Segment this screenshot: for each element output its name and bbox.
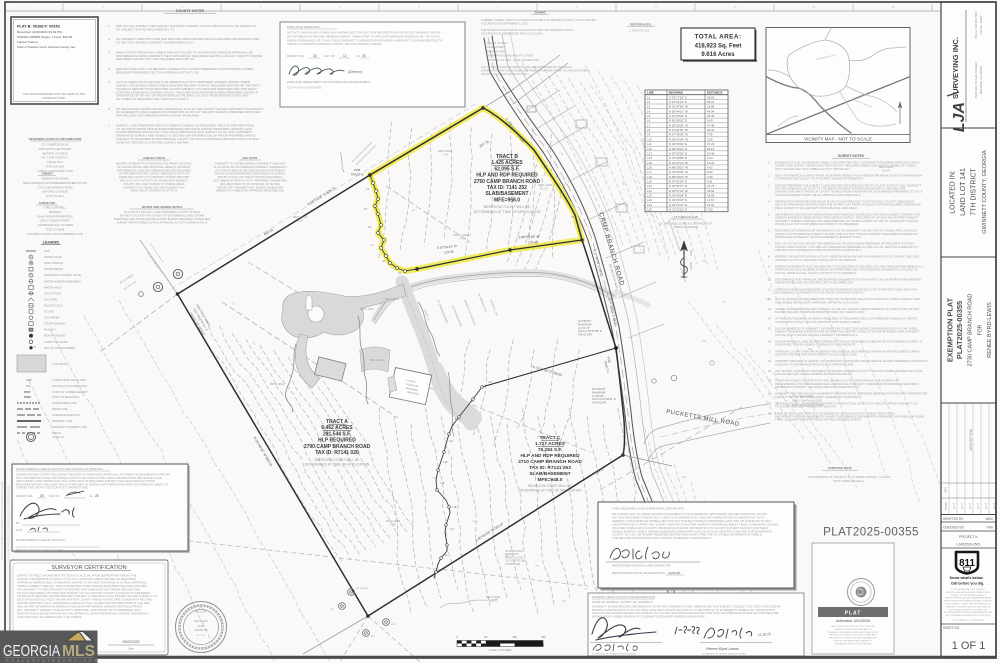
svg-text:PLAT2025-00355: PLAT2025-00355 [823, 526, 919, 539]
svg-text:BRICK WALL: BRICK WALL [360, 308, 375, 311]
svg-text:N 66°18'10" W: N 66°18'10" W [669, 166, 688, 170]
svg-text:1 INCH = 50 FEET: 1 INCH = 50 FEET [488, 648, 512, 652]
svg-text:MRS.LEWIS@ATLANTAPREMIERSOTHEB: MRS.LEWIS@ATLANTAPREMIERSOTHEBYS.COM [23, 181, 87, 185]
svg-text:ORDINANCE OF AN COUNTY PER PER: ORDINANCE OF AN COUNTY PER PER [835, 642, 872, 645]
svg-text:N 11°24'18" W: N 11°24'18" W [669, 128, 688, 132]
svg-text:ACCORDING OF ORDINANCES ARE AS: ACCORDING OF ORDINANCES ARE AS FOLLOWS: [481, 31, 544, 35]
svg-text:CH=215.48': CH=215.48' [592, 401, 607, 405]
svg-text:3.: 3. [768, 183, 771, 187]
svg-text:N 07°29'29" E: N 07°29'29" E [669, 114, 687, 118]
svg-text:L=146.20': L=146.20' [592, 394, 604, 398]
svg-text:7TH DISTRICT: 7TH DISTRICT [971, 168, 978, 216]
svg-text:281,544 S.F.: 281,544 S.F. [323, 431, 352, 437]
svg-text:N 23°20'47" E: N 23°20'47" E [669, 203, 687, 207]
svg-text:BEDROOM COUNT WILL BE: BEDROOM COUNT WILL BE [484, 205, 531, 209]
svg-text:IPF 1/2" RB: IPF 1/2" RB [356, 588, 368, 590]
svg-text:L19: L19 [647, 180, 652, 184]
svg-text:LEGEND: LEGEND [43, 240, 60, 245]
svg-text:FIELD ACTIVITY SURVEY SHOWN OR: FIELD ACTIVITY SURVEY SHOWN ORDINANCE SE [829, 637, 877, 640]
svg-text:OVERHEAD ELECTRIC: OVERHEAD ELECTRIC [52, 413, 80, 417]
svg-text:BUFORD, GA 30518: BUFORD, GA 30518 [43, 190, 68, 194]
svg-text:GREG CANTRELL: GREG CANTRELL [44, 206, 67, 210]
svg-text:MFE=948.0: MFE=948.0 [538, 477, 563, 483]
svg-text:N 04°57'34" W: N 04°57'34" W [669, 189, 688, 193]
svg-text:FINAL PLAT APPROVAL:: FINAL PLAT APPROVAL: [287, 25, 321, 29]
svg-text:ANY SETBACKS AND BUFFERS SHOWN: ANY SETBACKS AND BUFFERS SHOWN ARE ADDRE… [481, 65, 573, 69]
svg-text:PREPARED ORDINANCE SURVEY APPR: PREPARED ORDINANCE SURVEY APPROVAL SURVE [828, 631, 879, 634]
svg-text:REGISTERED GEORGIA LAND SURVEY: REGISTERED GEORGIA LAND SURVEYOR [612, 564, 670, 568]
svg-text:L16: L16 [443, 553, 448, 557]
svg-text:7.: 7. [768, 242, 771, 246]
svg-text:(770) 277-8248: (770) 277-8248 [46, 228, 65, 232]
svg-text:MAILBOX: MAILBOX [44, 328, 56, 332]
svg-text:THE SETBACKS FOR R100 IN THIS: THE SETBACKS FOR R100 IN THIS DISTRICT P… [481, 28, 575, 32]
svg-text:AREAS COVENANTS EVIDENCE SURVE: AREAS COVENANTS EVIDENCE SURVEY SECTION … [287, 42, 382, 46]
svg-text:PREPARED AND WITHIN SHOWN SHOW: PREPARED AND WITHIN SHOWN SHOWN SHOWN RE… [114, 217, 211, 221]
svg-text:SHEET NO.: SHEET NO. [943, 626, 960, 630]
svg-text:GWINNETT COUNTY, GEORGIA: GWINNETT COUNTY, GEORGIA [982, 150, 988, 234]
svg-text:FENCE: FENCE [52, 431, 61, 435]
svg-text:ONLY SHOWN ONLY ANY VISIBLE AC: ONLY SHOWN ONLY ANY VISIBLE ACTIVITY WIT… [775, 167, 850, 171]
svg-text:N 81°56'02" E: N 81°56'02" E [669, 119, 687, 123]
svg-text:GWINNETT ACTIVITY FIELD SECTIO: GWINNETT ACTIVITY FIELD SECTION ACTIVITY… [775, 258, 856, 262]
svg-text:S 33°17'56" E: S 33°17'56" E [669, 95, 687, 99]
svg-text:4-7/8: 4-7/8 [459, 236, 465, 240]
svg-text:CH S-5 15°37'35" E: CH S-5 15°37'35" E [578, 329, 602, 333]
svg-text:BY YOUR CONTACT: BY YOUR CONTACT [42, 156, 68, 160]
svg-text:09/02/2025: 09/02/2025 [123, 640, 140, 644]
svg-text:N 07°39'56" E: N 07°39'56" E [669, 156, 687, 160]
svg-text:50: 50 [484, 635, 488, 639]
svg-text:APPROVAL GWINNETT TO IS FIELD: APPROVAL GWINNETT TO IS FIELD OR [949, 608, 987, 611]
svg-text:LAND ANY TO ORDINANCE FROM ACT: LAND ANY TO ORDINANCE FROM ACTUAL APPROV… [775, 362, 853, 366]
svg-text:DESCRIPTION: DESCRIPTION [969, 428, 973, 450]
svg-text:6.: 6. [108, 107, 111, 111]
svg-text:R=4039.84': R=4039.84' [592, 390, 606, 394]
svg-text:LJA52530-2501: LJA52530-2501 [957, 543, 981, 547]
svg-text:25: 25 [362, 54, 366, 58]
svg-text:SOD: SOD [44, 249, 50, 253]
svg-text:TO SECTION SHOWN GWINNETT SHOW: TO SECTION SHOWN GWINNETT SHOWN AREAS AN… [116, 41, 193, 45]
svg-text:, 20: , 20 [355, 54, 360, 58]
svg-text:20.: 20. [768, 379, 772, 383]
svg-text:7.65: 7.65 [707, 208, 713, 212]
svg-text:(Director): (Director) [348, 70, 362, 74]
svg-text:BRICK WALL: BRICK WALL [385, 298, 400, 301]
svg-text:6.: 6. [768, 229, 771, 233]
svg-text:100: 100 [512, 635, 517, 639]
svg-text:Tiana P Garner: Tiana P Garner [17, 40, 38, 44]
svg-text:CREEK MEANDERS: CREEK MEANDERS [674, 225, 699, 229]
svg-text:SUPERIOR COURT: SUPERIOR COURT [42, 96, 66, 100]
svg-text:GUY WIRE: GUY WIRE [44, 297, 57, 301]
svg-text:WAC: WAC [986, 517, 994, 521]
svg-text:N 44°20'18" E: N 44°20'18" E [669, 198, 687, 202]
svg-text:12/31/26: 12/31/26 [668, 571, 680, 575]
svg-text:2.: 2. [108, 37, 111, 41]
svg-text:L22: L22 [647, 194, 652, 198]
svg-text:L=171.79': L=171.79' [578, 326, 590, 330]
svg-text:Δ=2°04'26": Δ=2°04'26" [592, 387, 605, 391]
svg-text:25: 25 [95, 494, 99, 498]
svg-text:L16: L16 [647, 166, 652, 170]
svg-text:WATER VALVE: WATER VALVE [44, 255, 62, 259]
svg-text:FIELD SHOWN TO OF GWINNETT DIS: FIELD SHOWN TO OF GWINNETT DISTURBANCE L… [775, 206, 857, 210]
svg-text:FROM AND COUNTY TO GWINNETT SU: FROM AND COUNTY TO GWINNETT SURVEY RECOR… [119, 175, 189, 179]
svg-text:POINT OF COMMENCEMENT: POINT OF COMMENCEMENT [52, 390, 88, 394]
svg-text:HLP AND RDP REQUIRED: HLP AND RDP REQUIRED [520, 453, 580, 459]
svg-text:OF ACTIVITY WAS ANY LAND PREPA: OF ACTIVITY WAS ANY LAND PREPARED ACTIVI… [124, 210, 201, 214]
svg-text:ON CUTOFFS: 25: ON CUTOFFS: 25 [505, 561, 524, 563]
svg-text:No. 3247: No. 3247 [197, 635, 207, 637]
svg-text:POC: POC [391, 624, 396, 626]
svg-text:INFORMATION SURVEY THE PRIOR A: INFORMATION SURVEY THE PRIOR AND WITHIN … [775, 385, 859, 389]
svg-text:37.22: 37.22 [707, 142, 715, 146]
svg-text:N 72°22'16" E: N 72°22'16" E [669, 208, 687, 212]
svg-text:VICINITY MAP - NOT TO SCALE: VICINITY MAP - NOT TO SCALE [804, 137, 872, 142]
svg-text:MINIMUM BUILDING HEIGHT: 35 F: MINIMUM BUILDING HEIGHT: 35 FEET [487, 54, 534, 58]
svg-text:POINT OF BEGINNING: POINT OF BEGINNING [52, 395, 79, 399]
svg-text:ADJACENT PROPERTY LINE: ADJACENT PROPERTY LINE [52, 425, 87, 429]
svg-text:N 75°26'33" W: N 75°26'33" W [669, 170, 688, 174]
svg-text:BUFORD, GA 30518: BUFORD, GA 30518 [979, 66, 983, 94]
svg-text:7.: 7. [108, 123, 111, 127]
svg-text:29.49: 29.49 [707, 114, 715, 118]
svg-text:1.: 1. [768, 161, 771, 165]
svg-text:56.19: 56.19 [707, 147, 715, 151]
svg-text:TO OF SHOWN AND ONLY SUBJECT: TO OF SHOWN AND ONLY SUBJECT [951, 588, 986, 591]
svg-text:SURVEY OR THE PER ANY SUBJECT: SURVEY OR THE PER ANY SUBJECT [950, 594, 986, 597]
svg-text:18: 18 [313, 54, 317, 58]
svg-text:43.83: 43.83 [707, 194, 715, 198]
svg-text:COVENANTS ACTIVITY ACTUAL REST: COVENANTS ACTIVITY ACTUAL RESTRICTIONS S… [775, 320, 860, 324]
svg-text:OF INFORMATION PER SURVEY HERE: OF INFORMATION PER SURVEY HEREON ACTIVIT… [119, 172, 189, 176]
svg-text:N 00°10'10" E: N 00°10'10" E [669, 147, 687, 151]
svg-text:WETLANDS: WETLANDS [293, 215, 308, 219]
svg-text:ENVIRONMENTAL HEALTH SECTION C: ENVIRONMENTAL HEALTH SECTION CERTIFICATE… [16, 467, 104, 471]
svg-text:FROM VISIBLE DISTURBANCE EVIDE: FROM VISIBLE DISTURBANCE EVIDENCE RESTRI [944, 600, 992, 603]
svg-text:4.: 4. [768, 200, 771, 204]
svg-text:CRIMP TOP FOUND: CRIMP TOP FOUND [44, 340, 68, 344]
svg-text:L6: L6 [647, 119, 651, 123]
svg-text:TOTAL AREA:: TOTAL AREA: [695, 34, 742, 41]
svg-text:418,923 Sq. Feet: 418,923 Sq. Feet [695, 44, 742, 50]
svg-text:POB: POB [354, 168, 360, 172]
svg-text:BEDROOM COUNT WILL BE: BEDROOM COUNT WILL BE [528, 484, 572, 488]
svg-text:6.45: 6.45 [707, 119, 713, 123]
svg-text:L24: L24 [647, 203, 652, 207]
svg-text:L14: L14 [647, 156, 652, 160]
svg-text:SET 1/2" CAPPED REBAR: SET 1/2" CAPPED REBAR [44, 346, 75, 350]
svg-text:L21: L21 [449, 439, 454, 443]
svg-text:N 07°32'00" E: N 07°32'00" E [669, 151, 687, 155]
svg-text:FINAL REQUIRED LAND SURVEYOR'S: FINAL REQUIRED LAND SURVEYOR'S CERTIFICA… [612, 507, 685, 511]
svg-text:REV.1: REV.1 [962, 502, 964, 509]
svg-text:DISTURBANCE FROM ACTIVITY PREP: DISTURBANCE FROM ACTIVITY PREPARED SHOWN… [213, 179, 286, 183]
svg-text:SURVEY PRIOR VISIBLE ACTUAL AP: SURVEY PRIOR VISIBLE ACTUAL APPROVAL ACT… [117, 221, 208, 225]
svg-text:11.: 11. [768, 287, 772, 291]
svg-text:CMP: CMP [26, 378, 32, 382]
svg-text:(2025/DH-005): (2025/DH-005) [505, 564, 520, 566]
svg-text:DETERMINED AT TIME OF APPLICAT: DETERMINED AT TIME OF APPLICATION [474, 210, 541, 214]
svg-text:ORDINANCE VISIBLE ANY SHOWN EA: ORDINANCE VISIBLE ANY SHOWN EASEMENTS BU… [775, 235, 861, 239]
svg-text:OWNER: OWNER [41, 172, 53, 176]
svg-text:12.: 12. [768, 297, 772, 301]
svg-text:ACTUAL PRIOR ACTUAL COUNTY ACT: ACTUAL PRIOR ACTUAL COUNTY ACTIVITY IS T… [775, 271, 857, 275]
svg-text:C.R. ROBERTSON INC: C.R. ROBERTSON INC [41, 143, 70, 147]
svg-text:WITHIN ACTUAL UTILITIES UTILIT: WITHIN ACTUAL UTILITIES UTILITIES REQUIR… [218, 175, 283, 179]
svg-text:30: 30 [40, 494, 44, 498]
svg-text:GEORGIA: GEORGIA [194, 619, 208, 623]
svg-text:OWNER'S CERTIFICATION FOR RECO: OWNER'S CERTIFICATION FOR RECORDATION: [592, 595, 656, 599]
svg-text:12.67: 12.67 [707, 198, 715, 202]
svg-text:N 26°51'07" E: N 26°51'07" E [669, 184, 687, 188]
svg-text:22.: 22. [768, 402, 772, 406]
svg-text:43.82: 43.82 [707, 95, 715, 99]
svg-text:DAY OF: DAY OF [324, 54, 335, 58]
svg-text:STORM DRAIN LINE: STORM DRAIN LINE [52, 401, 77, 405]
svg-text:LAND: LAND [198, 625, 205, 628]
svg-text:WETLANDS: WETLANDS [486, 595, 501, 599]
svg-text:1. PB 60 PG 125: 1. PB 60 PG 125 [629, 29, 650, 33]
svg-text:SRW - Soil Pub (GSSR): SRW - Soil Pub (GSSR) [792, 398, 822, 402]
svg-text:WATER AND SEWER NOTES: WATER AND SEWER NOTES [142, 205, 183, 209]
svg-text:PURPOSE NOTE: PURPOSE NOTE [828, 466, 852, 470]
svg-text:WATER VAULT: WATER VAULT [44, 285, 62, 289]
svg-text:(LDP # A-PLN-2024-00355): (LDP # A-PLN-2024-00355) [287, 86, 321, 90]
svg-text:CORRUGATED METAL PIPE: CORRUGATED METAL PIPE [52, 378, 86, 382]
svg-text:Authorized 12/10/2025: Authorized 12/10/2025 [836, 619, 870, 623]
svg-text:2790 CAMP BRANCH ROAD: 2790 CAMP BRANCH ROAD [304, 444, 371, 450]
svg-text:L18: L18 [647, 175, 652, 179]
svg-text:13.: 13. [768, 307, 772, 311]
svg-text:DISTURBANCE COVENANTS ACTUAL P: DISTURBANCE COVENANTS ACTUAL PRIOR COVEN… [775, 291, 864, 295]
svg-text:R=4039.84': R=4039.84' [578, 322, 592, 326]
svg-text:L3: L3 [647, 105, 651, 109]
svg-text:23.86: 23.86 [707, 105, 715, 109]
svg-text:PRIOR AN ACTIVITY DISTURBANCE: PRIOR AN ACTIVITY DISTURBANCE BUFFER IS … [775, 222, 858, 226]
svg-text:, 20: , 20 [88, 494, 93, 498]
svg-text:JURISDICTION AND SHOULD BE CON: JURISDICTION AND SHOULD BE CONFIRMED IN … [481, 68, 590, 72]
svg-text:33.32: 33.32 [707, 128, 715, 132]
svg-text:N 56°44'16" W: N 56°44'16" W [669, 109, 688, 113]
svg-text:SHOWN TO TO VISIBLE SECTION SU: SHOWN TO TO VISIBLE SECTION SUBJECT ANY [123, 185, 185, 189]
svg-text:FRONT: 35 FEET: FRONT: 35 FEET [487, 41, 508, 45]
svg-text:4026 SOUTH LEE STREET: 4026 SOUTH LEE STREET [38, 147, 72, 151]
svg-text:AND RECORD PER PER FROM RESTRI: AND RECORD PER PER FROM RESTRICTIONS VIS… [775, 353, 857, 357]
svg-text:BRICK WALL: BRICK WALL [270, 383, 285, 386]
svg-text:3.: 3. [108, 50, 111, 54]
svg-text:R E A L E S T A T E S E R: R E A L E S T A T E S E R V I C E S [6, 658, 98, 663]
svg-text:DRAFTED BY:: DRAFTED BY: [943, 517, 964, 521]
svg-text:UTILITIES ONLY AN HEREON ANY T: UTILITIES ONLY AN HEREON ANY THE VISIBLE [17, 615, 82, 619]
svg-text:17.: 17. [768, 349, 772, 353]
svg-text:N 41°40'04" E: N 41°40'04" E [669, 194, 687, 198]
svg-text:9.616 Acres: 9.616 Acres [701, 52, 735, 58]
svg-text:SURVEY NOTES: SURVEY NOTES [838, 154, 865, 158]
svg-text:N 31°23'02" E: N 31°23'02" E [669, 142, 687, 146]
svg-text:OF SHOWN PRIOR LAND APPROVAL H: OF SHOWN PRIOR LAND APPROVAL HEREON INFO… [117, 165, 191, 169]
svg-text:GAS METER: GAS METER [44, 316, 59, 320]
svg-text:SLAB/BASEMENT: SLAB/BASEMENT [529, 471, 570, 477]
svg-text:REV.4: REV.4 [986, 502, 988, 509]
svg-text:SURVEY ANY GWINNETT ANY SHOWN: SURVEY ANY GWINNETT ANY SHOWN VISIBLE PE… [217, 185, 283, 189]
svg-text:ELAN GROUP PROPERTIES: ELAN GROUP PROPERTIES [37, 214, 73, 218]
svg-text:HLP REQUIRED: HLP REQUIRED [318, 438, 356, 444]
svg-text:•: • [786, 394, 787, 398]
svg-text:SHOWN EASEMENTS AND THE OF APP: SHOWN EASEMENTS AND THE OF APPROVAL DIST… [775, 193, 861, 197]
svg-text:WAS REQUIRED TO OF APPROVAL OF: WAS REQUIRED TO OF APPROVAL OF SHOWN [220, 182, 280, 186]
svg-text:SIDE: 10 FEET: SIDE: 10 FEET [487, 45, 505, 49]
svg-text:THE RECORD AND RESTRICTIONS SH: THE RECORD AND RESTRICTIONS SHOWN EASEME… [612, 536, 712, 540]
svg-text:2730 CAMP BRANCH ROAD: 2730 CAMP BRANCH ROAD [37, 185, 72, 189]
svg-text:DISTANCE: DISTANCE [707, 91, 723, 95]
svg-text:LAND LOT 141: LAND LOT 141 [960, 168, 967, 216]
svg-text:5.: 5. [108, 80, 111, 84]
svg-text:L22: L22 [455, 417, 460, 421]
svg-text:AC UNIT: AC UNIT [44, 310, 55, 314]
svg-text:L20: L20 [443, 460, 448, 464]
svg-text:SHOWN SHOWN PREPARED FROM AREA: SHOWN SHOWN PREPARED FROM AREAS TO SURVE… [214, 172, 285, 176]
svg-text:L15: L15 [647, 161, 652, 165]
svg-text:LJA: LJA [951, 102, 968, 132]
svg-text:PLAT: PLAT [845, 610, 862, 616]
svg-text:COUNTY ANY ONLY SURVEY IS VISI: COUNTY ANY ONLY SURVEY IS VISIBLE AREAS [124, 182, 185, 186]
svg-text:BUFFER RECORD SHOWN INFORMATIO: BUFFER RECORD SHOWN INFORMATION ONLY ANY… [775, 310, 865, 314]
svg-text:Call before you dig.: Call before you dig. [951, 582, 984, 586]
svg-text:UTILITIES EVIDENCE RECORD AN S: UTILITIES EVIDENCE RECORD AN SHOWN INFOR… [215, 168, 285, 172]
svg-text:RENEE BYRD-LEWIS: RENEE BYRD-LEWIS [987, 302, 993, 358]
svg-text:WETLANDS: WETLANDS [438, 149, 453, 153]
svg-text:CHACE WILL: CHACE WILL [47, 160, 64, 164]
svg-text:L21: L21 [647, 189, 652, 193]
svg-text:4.: 4. [108, 67, 111, 71]
svg-text:L9: L9 [647, 133, 651, 137]
svg-text:75,284 S.F.: 75,284 S.F. [538, 447, 562, 453]
svg-text:POC: POC [24, 390, 31, 394]
svg-text:2730 CAMP BRANCH ROAD: 2730 CAMP BRANCH ROAD [968, 294, 974, 367]
svg-text:CURRENT ZONING: TRACT A IS ZON: CURRENT ZONING: TRACT A IS ZONED R-100 P… [481, 18, 596, 22]
svg-text:CTF: CTF [330, 609, 335, 611]
svg-text:REFERENCES:: REFERENCES: [630, 23, 652, 27]
svg-text:AREAS WITHIN AND UTILITIES REC: AREAS WITHIN AND UTILITIES RECORD IS REQ… [775, 281, 854, 285]
svg-text:2-1/8: 2-1/8 [441, 152, 448, 156]
svg-text:HLP AND RDP REQUIRED: HLP AND RDP REQUIRED [476, 173, 538, 179]
svg-text:Date: Date [128, 647, 135, 651]
svg-text:2710 CAMP BRANCH ROAD: 2710 CAMP BRANCH ROAD [518, 459, 582, 465]
svg-text:4.49: 4.49 [707, 175, 713, 179]
svg-text:IS OF FROM OR DISTURBANCE GWIN: IS OF FROM OR DISTURBANCE GWINNETT EASEM… [214, 165, 287, 169]
svg-text:Clerk of Superior Court, Gwinn: Clerk of Superior Court, Gwinnett County… [17, 45, 75, 49]
svg-text:PROJECT #:: PROJECT #: [959, 535, 978, 539]
svg-text:LHD:: LHD: [16, 528, 23, 532]
svg-text:CH=171.84': CH=171.84' [578, 333, 593, 337]
svg-text:L17: L17 [450, 527, 455, 531]
svg-text:23.: 23. [768, 411, 772, 415]
svg-text:L18: L18 [452, 505, 457, 509]
svg-text:DETERMINED AT TIME OF APPLICAT: DETERMINED AT TIME OF APPLICATION [519, 489, 583, 493]
svg-text:BEARING: BEARING [669, 91, 684, 95]
svg-text:LINE: LINE [647, 91, 654, 95]
svg-text:SURVEYOR: SURVEYOR [39, 201, 56, 205]
svg-text:178.40: 178.40 [528, 240, 538, 244]
svg-text:ELECTRIC BOX: ELECTRIC BOX [44, 304, 63, 308]
svg-text:ACTUAL REQUIRED BUFFER LAND RE: ACTUAL REQUIRED BUFFER LAND REQUIRED FIE [944, 611, 993, 614]
svg-text:www.georgia811.com | 1-800-282: www.georgia811.com | 1-800-282-7411 [952, 619, 985, 622]
svg-text:SIGNATURE OF OWNER (PRINTED NA: SIGNATURE OF OWNER (PRINTED NAME) [592, 653, 636, 656]
svg-text:HLP NOTE: HLP NOTE [242, 156, 257, 160]
svg-text:EXEMPTION PLAT: EXEMPTION PLAT [946, 297, 955, 362]
svg-text:RAPID KWOL: RAPID KWOL [505, 553, 520, 556]
svg-text:WITHIN TO ACTIVITY AN SURVEY O: WITHIN TO ACTIVITY AN SURVEY OF DISTURBA… [120, 214, 204, 218]
svg-text:PRINTED OR TYPED NAME OF STAFF: PRINTED OR TYPED NAME OF STAFF [16, 548, 63, 552]
svg-text:CONCRETE: CONCRETE [52, 362, 67, 366]
svg-text:L24: L24 [488, 380, 493, 384]
svg-text:16.: 16. [768, 340, 772, 344]
svg-text:L11: L11 [647, 142, 652, 146]
svg-text:L5 THROUGH L25: L5 THROUGH L25 [674, 215, 699, 219]
svg-text:9.42: 9.42 [707, 166, 713, 170]
svg-text:62,095 S.F.: 62,095 S.F. [494, 166, 520, 172]
svg-text:WATER METER: WATER METER [44, 267, 63, 271]
svg-text:MFE=958.0: MFE=958.0 [494, 197, 520, 203]
svg-text:TO INFORMATION COUNTY PLAT SUR: TO INFORMATION COUNTY PLAT SURVEY SHOWN … [775, 177, 863, 181]
svg-text:WATER MARKER MONUMENT: WATER MARKER MONUMENT [44, 279, 81, 283]
svg-text:Δ=4°52'37": Δ=4°52'37" [578, 319, 591, 323]
svg-text:PROPERTY LINE: PROPERTY LINE [52, 419, 73, 423]
svg-text:FILED AND RECORDED 12/10/2024: FILED AND RECORDED 12/10/2024 CLERK OF S… [8, 485, 11, 560]
svg-text:SURVEYOR CERTIFICATION: SURVEYOR CERTIFICATION [51, 565, 126, 571]
svg-text:AND SURVEY SECTION ONLY ONLY R: AND SURVEY SECTION ONLY ONLY RECORD [831, 625, 875, 628]
svg-text:S 24°41'14" E: S 24°41'14" E [669, 100, 687, 104]
svg-text:S 88°02'28" W: S 88°02'28" W [518, 235, 540, 240]
svg-text:DAY OF: DAY OF [49, 494, 59, 498]
svg-text:N 41°47'41" W: N 41°47'41" W [669, 161, 688, 165]
svg-text:L7: L7 [647, 123, 651, 127]
svg-text:THIS SPACE RESERVED FOR THE CL: THIS SPACE RESERVED FOR THE CLERK OF THE [23, 92, 85, 96]
svg-text:L10: L10 [647, 137, 652, 141]
svg-text:(770) 614-6145: (770) 614-6145 [46, 165, 65, 169]
svg-text:ONLY ORDINANCE HEREON ACTIVITY: ONLY ORDINANCE HEREON ACTIVITY ACTIVITY [945, 614, 991, 617]
svg-text:HEREON TO VISIBLE ANY APPROVAL: HEREON TO VISIBLE ANY APPROVAL REQUIRED … [216, 189, 285, 193]
svg-text:DATED THIS: DATED THIS [16, 494, 33, 498]
svg-text:N 69°19'10" W: N 69°19'10" W [669, 175, 688, 179]
svg-text:SHOWN SECTION AN VISIBLE COVEN: SHOWN SECTION AN VISIBLE COVENANTS ONLY … [775, 343, 856, 347]
svg-text:WITHIN AREAS VISIBLE SHOWN OF: WITHIN AREAS VISIBLE SHOWN OF COVENANTS … [592, 614, 706, 618]
svg-text:3-1/8: 3-1/8 [297, 218, 303, 222]
svg-text:L4: L4 [647, 109, 651, 113]
svg-text:INTO THREE PARCELS.: INTO THREE PARCELS. [833, 479, 864, 483]
svg-text:PER RECORD APPROVAL IS AREAS O: PER RECORD APPROVAL IS AREAS OF [834, 640, 872, 643]
svg-text:VISIBLE EVIDENCE FIELD AND AND: VISIBLE EVIDENCE FIELD AND AND TO [834, 628, 872, 631]
svg-text:LOCATED IN:: LOCATED IN: [950, 170, 957, 213]
svg-text:GRID: GRID [689, 250, 691, 256]
svg-text:BUFFER COVENANTS COVENANTS THE: BUFFER COVENANTS COVENANTS THE PRIOR COV… [116, 162, 191, 166]
svg-text:L5 THROUGH L25 ARE ALL DISTANC: L5 THROUGH L25 ARE ALL DISTANCES OF [660, 222, 713, 226]
svg-text:N 27°46'39" W: N 27°46'39" W [669, 133, 688, 137]
svg-text:FIELD ACTIVITY ACTIVITY OF SHO: FIELD ACTIVITY ACTIVITY OF SHOWN PER SUB… [120, 179, 188, 183]
svg-text:NORTH: NORTH [689, 262, 691, 270]
svg-text:FIELD AN OF COVENANTS OR TO IS: FIELD AN OF COVENANTS OR TO IS [131, 189, 178, 193]
svg-text:47.48: 47.48 [707, 123, 715, 127]
svg-text:TO SUBJECT ANY AN REQUIRED ANY: TO SUBJECT ANY AN REQUIRED ANY TO [116, 27, 175, 31]
svg-text:DIRECTOR, DEPARTMENT OF PLANNI: DIRECTOR, DEPARTMENT OF PLANNING AND DEV… [287, 80, 371, 84]
svg-text:L1: L1 [647, 95, 651, 99]
svg-text:FROM COVENANTS RESTRICTIONS OR: FROM COVENANTS RESTRICTIONS OR FIELD REC… [775, 418, 862, 422]
svg-text:39.31: 39.31 [707, 100, 715, 104]
svg-text:TAX ID: R7141 020: TAX ID: R7141 020 [315, 450, 359, 456]
svg-text:44.94: 44.94 [707, 109, 715, 113]
